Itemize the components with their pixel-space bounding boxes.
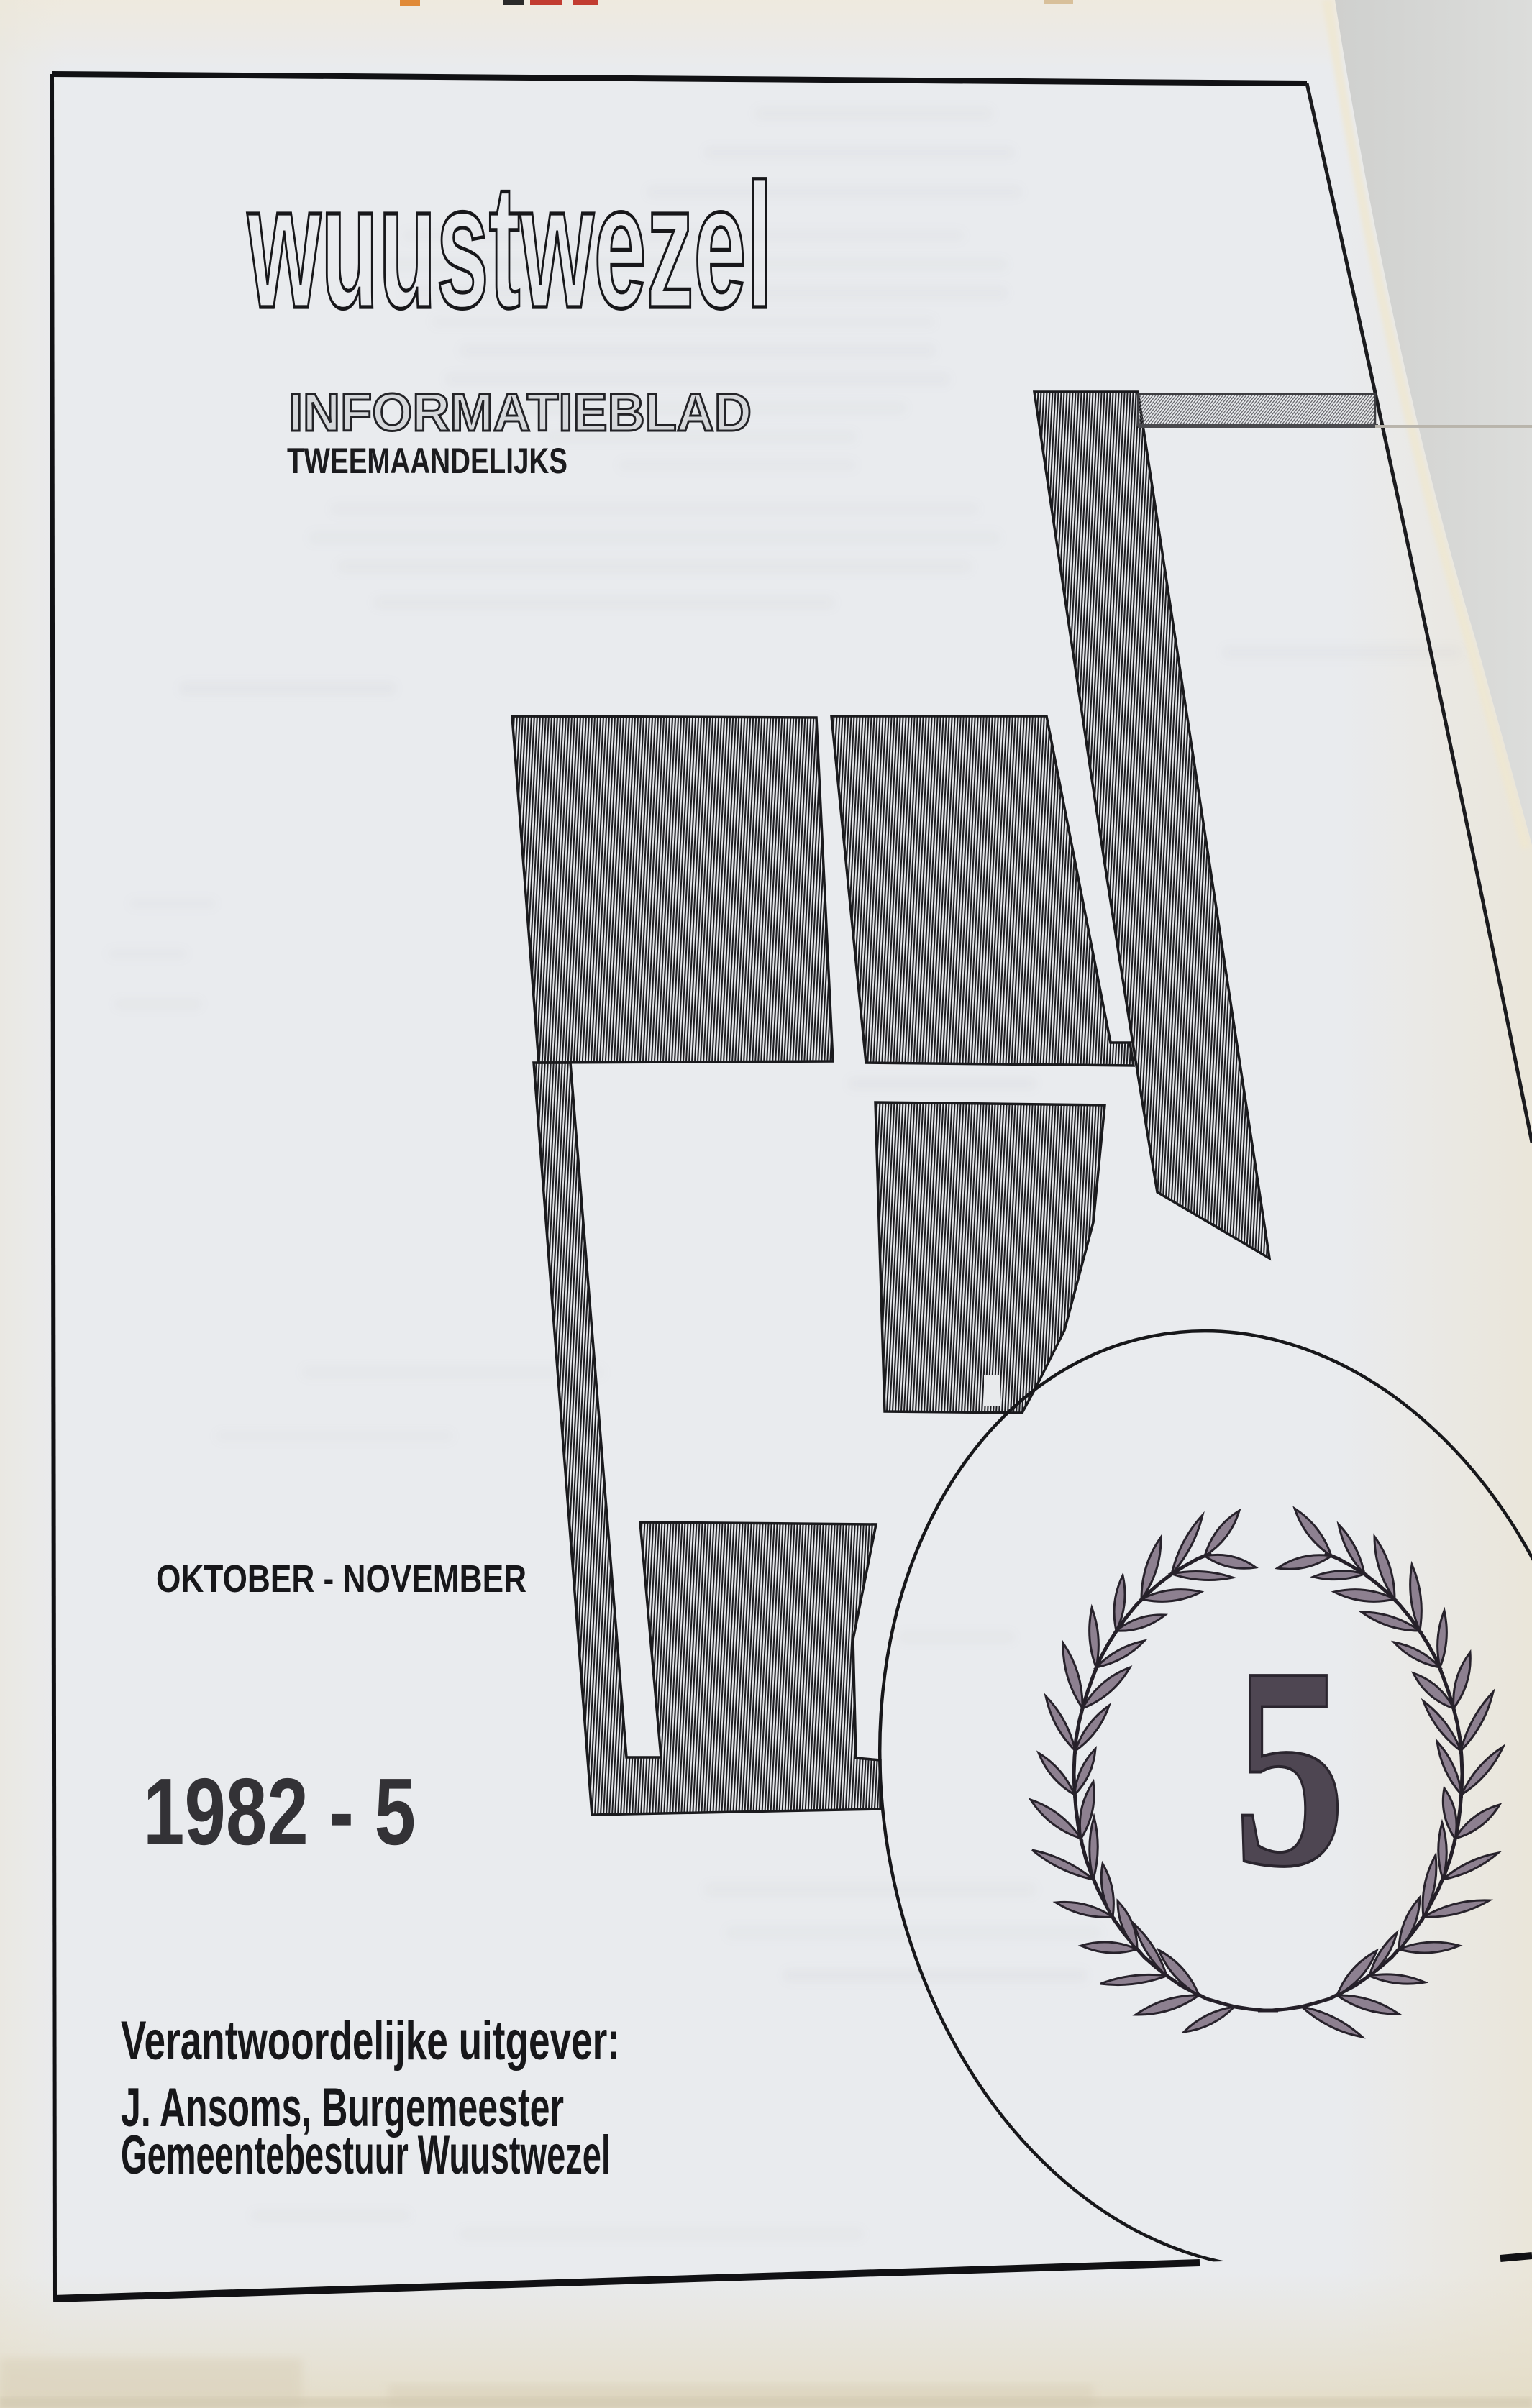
- svg-text:wuustwezel: wuustwezel: [247, 147, 772, 345]
- svg-text:OKTOBER - NOVEMBER: OKTOBER - NOVEMBER: [156, 1557, 526, 1601]
- svg-text:5: 5: [1234, 1607, 1346, 1926]
- svg-text:TWEEMAANDELIJKS: TWEEMAANDELIJKS: [287, 441, 567, 481]
- svg-text:INFORMATIEBLAD: INFORMATIEBLAD: [288, 383, 752, 442]
- svg-text:1982 - 5: 1982 - 5: [143, 1759, 416, 1864]
- svg-text:Gemeentebestuur Wuustwezel: Gemeentebestuur Wuustwezel: [121, 2125, 611, 2186]
- svg-text:Verantwoordelijke uitgever:: Verantwoordelijke uitgever:: [121, 2010, 620, 2071]
